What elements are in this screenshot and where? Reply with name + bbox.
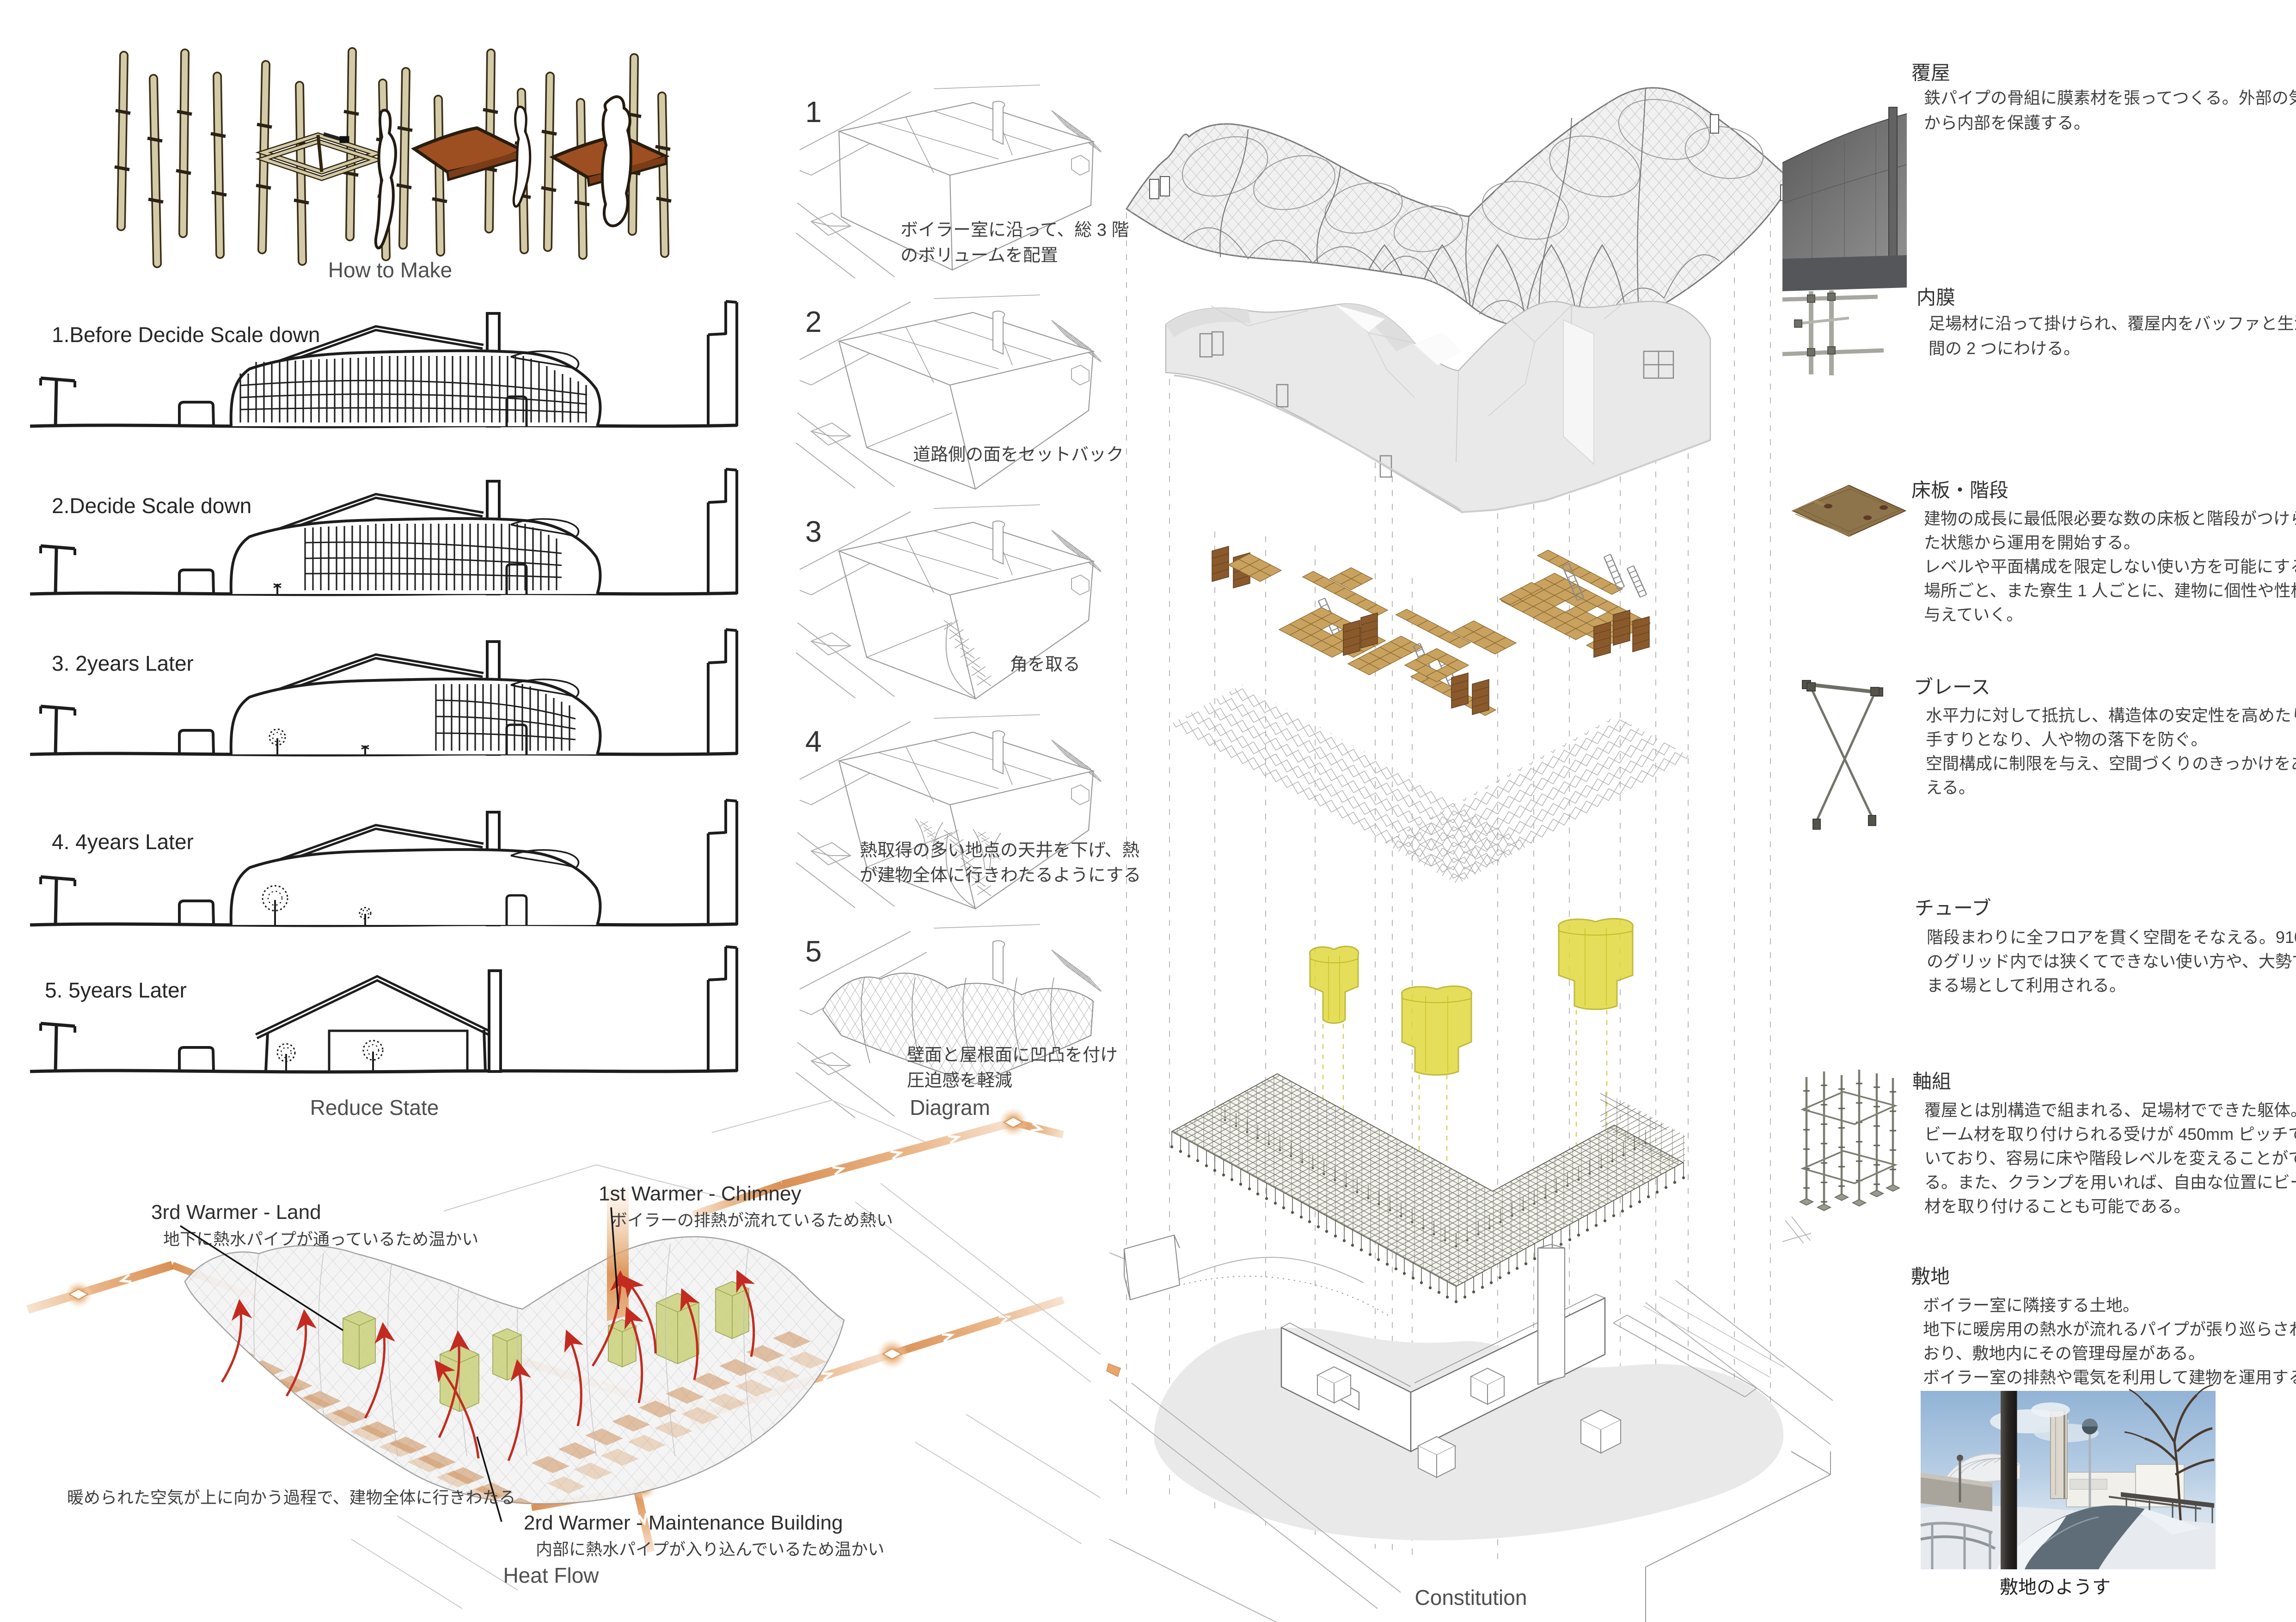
svg-text:空間構成に制限を与え、空間づくりのきっかけをあた: 空間構成に制限を与え、空間づくりのきっかけをあた xyxy=(1926,754,2296,773)
svg-text:Diagram: Diagram xyxy=(910,1096,990,1120)
svg-text:5. 5years Later: 5. 5years Later xyxy=(45,978,187,1002)
svg-text:熱取得の多い地点の天井を下げ、熱: 熱取得の多い地点の天井を下げ、熱 xyxy=(860,841,1139,860)
svg-text:4. 4years Later: 4. 4years Later xyxy=(52,830,194,854)
svg-text:ボイラー室に隣接する土地。: ボイラー室に隣接する土地。 xyxy=(1923,1296,2139,1315)
svg-text:与えていく。: 与えていく。 xyxy=(1924,605,2023,624)
svg-text:水平力に対して抵抗し、構造体の安定性を高めたり、: 水平力に対して抵抗し、構造体の安定性を高めたり、 xyxy=(1926,706,2296,725)
svg-text:床板・階段: 床板・階段 xyxy=(1911,479,2008,501)
svg-text:圧迫感を軽減: 圧迫感を軽減 xyxy=(907,1071,1012,1090)
svg-text:材を取り付けることも可能である。: 材を取り付けることも可能である。 xyxy=(1924,1197,2191,1216)
svg-text:1st Warmer - Chimney: 1st Warmer - Chimney xyxy=(599,1182,801,1205)
svg-text:のボリュームを配置: のボリュームを配置 xyxy=(900,246,1058,265)
svg-text:チューブ: チューブ xyxy=(1915,897,1991,919)
svg-text:2: 2 xyxy=(805,305,822,338)
svg-text:ビーム材を取り付けられる受けが 450mm ピッチでつ: ビーム材を取り付けられる受けが 450mm ピッチでつ xyxy=(1924,1125,2296,1144)
svg-text:る。また、クランプを用いれば、自由な位置にビーム: る。また、クランプを用いれば、自由な位置にビーム xyxy=(1924,1173,2296,1192)
svg-text:まる場として利用される。: まる場として利用される。 xyxy=(1927,976,2126,995)
svg-text:角を取る: 角を取る xyxy=(1010,655,1080,674)
svg-text:ボイラーの排熱が流れているため熱い: ボイラーの排熱が流れているため熱い xyxy=(611,1211,893,1230)
svg-text:鉄パイプの骨組に膜素材を張ってつくる。外部の気象: 鉄パイプの骨組に膜素材を張ってつくる。外部の気象 xyxy=(1924,88,2296,107)
svg-text:3rd Warmer - Land: 3rd Warmer - Land xyxy=(151,1201,321,1224)
svg-text:間の 2 つにわける。: 間の 2 つにわける。 xyxy=(1929,339,2080,358)
svg-text:える。: える。 xyxy=(1926,778,1975,797)
svg-text:た状態から運用を開始する。: た状態から運用を開始する。 xyxy=(1924,533,2140,552)
svg-text:いており、容易に床や階段レベルを変えることができ: いており、容易に床や階段レベルを変えることができ xyxy=(1924,1149,2296,1168)
svg-text:4: 4 xyxy=(805,725,822,758)
svg-text:Heat Flow: Heat Flow xyxy=(503,1563,599,1587)
svg-text:道路側の面をセットバック: 道路側の面をセットバック xyxy=(913,445,1124,465)
svg-text:内部に熱水パイプが入り込んでいるため温かい: 内部に熱水パイプが入り込んでいるため温かい xyxy=(536,1540,884,1559)
svg-text:が建物全体に行きわたるようにする: が建物全体に行きわたるようにする xyxy=(860,866,1141,885)
svg-text:足場材に沿って掛けられ、覆屋内をバッファと生活空: 足場材に沿って掛けられ、覆屋内をバッファと生活空 xyxy=(1929,314,2296,333)
svg-text:3: 3 xyxy=(805,515,822,548)
svg-text:内膜: 内膜 xyxy=(1916,287,1955,308)
svg-text:覆屋とは別構造で組まれる、足場材でできた躯体。: 覆屋とは別構造で組まれる、足場材でできた躯体。 xyxy=(1924,1101,2296,1120)
svg-text:軸組: 軸組 xyxy=(1912,1071,1951,1092)
svg-text:レベルや平面構成を限定しない使い方を可能にする。: レベルや平面構成を限定しない使い方を可能にする。 xyxy=(1924,557,2296,576)
svg-text:手すりとなり、人や物の落下を防ぐ。: 手すりとなり、人や物の落下を防ぐ。 xyxy=(1926,730,2207,749)
svg-text:建物の成長に最低限必要な数の床板と階段がつけられ: 建物の成長に最低限必要な数の床板と階段がつけられ xyxy=(1924,509,2296,528)
svg-text:3. 2years Later: 3. 2years Later xyxy=(52,651,194,675)
svg-text:場所ごと、また寮生 1 人ごとに、建物に個性や性格を: 場所ごと、また寮生 1 人ごとに、建物に個性や性格を xyxy=(1924,581,2296,600)
svg-text:Constitution: Constitution xyxy=(1415,1585,1527,1610)
svg-text:のグリッド内では狭くてできない使い方や、大勢でた: のグリッド内では狭くてできない使い方や、大勢でた xyxy=(1927,952,2296,971)
svg-text:2rd Warmer - Maintenance Build: 2rd Warmer - Maintenance Building xyxy=(524,1512,843,1534)
svg-text:1: 1 xyxy=(805,95,822,129)
svg-text:ブレース: ブレース xyxy=(1914,676,1990,698)
svg-text:敷地のようす: 敷地のようす xyxy=(2000,1577,2111,1598)
svg-text:2.Decide Scale down: 2.Decide Scale down xyxy=(52,494,251,518)
svg-text:ボイラー室に沿って、総 3 階: ボイラー室に沿って、総 3 階 xyxy=(900,220,1129,240)
svg-text:暖められた空気が上に向かう過程で、建物全体に行きわたる: 暖められた空気が上に向かう過程で、建物全体に行きわたる xyxy=(67,1488,516,1507)
svg-text:階段まわりに全フロアを貫く空間をそなえる。910mm: 階段まわりに全フロアを貫く空間をそなえる。910mm xyxy=(1927,928,2296,947)
svg-text:敷地: 敷地 xyxy=(1911,1266,1950,1287)
svg-text:Reduce State: Reduce State xyxy=(310,1096,439,1120)
svg-text:おり、敷地内にその管理母屋がある。: おり、敷地内にその管理母屋がある。 xyxy=(1923,1344,2205,1363)
svg-text:壁面と屋根面に凹凸を付け: 壁面と屋根面に凹凸を付け xyxy=(907,1046,1118,1065)
svg-text:How to Make: How to Make xyxy=(328,258,452,282)
svg-text:地下に暖房用の熱水が流れるパイプが張り巡らされて: 地下に暖房用の熱水が流れるパイプが張り巡らされて xyxy=(1923,1320,2296,1339)
svg-text:ボイラー室の排熱や電気を利用して建物を運用する。: ボイラー室の排熱や電気を利用して建物を運用する。 xyxy=(1923,1368,2296,1387)
svg-text:覆屋: 覆屋 xyxy=(1911,62,1950,84)
svg-text:1.Before Decide Scale down: 1.Before Decide Scale down xyxy=(52,323,320,347)
svg-text:5: 5 xyxy=(805,935,822,968)
svg-text:から内部を保護する。: から内部を保護する。 xyxy=(1924,113,2090,132)
